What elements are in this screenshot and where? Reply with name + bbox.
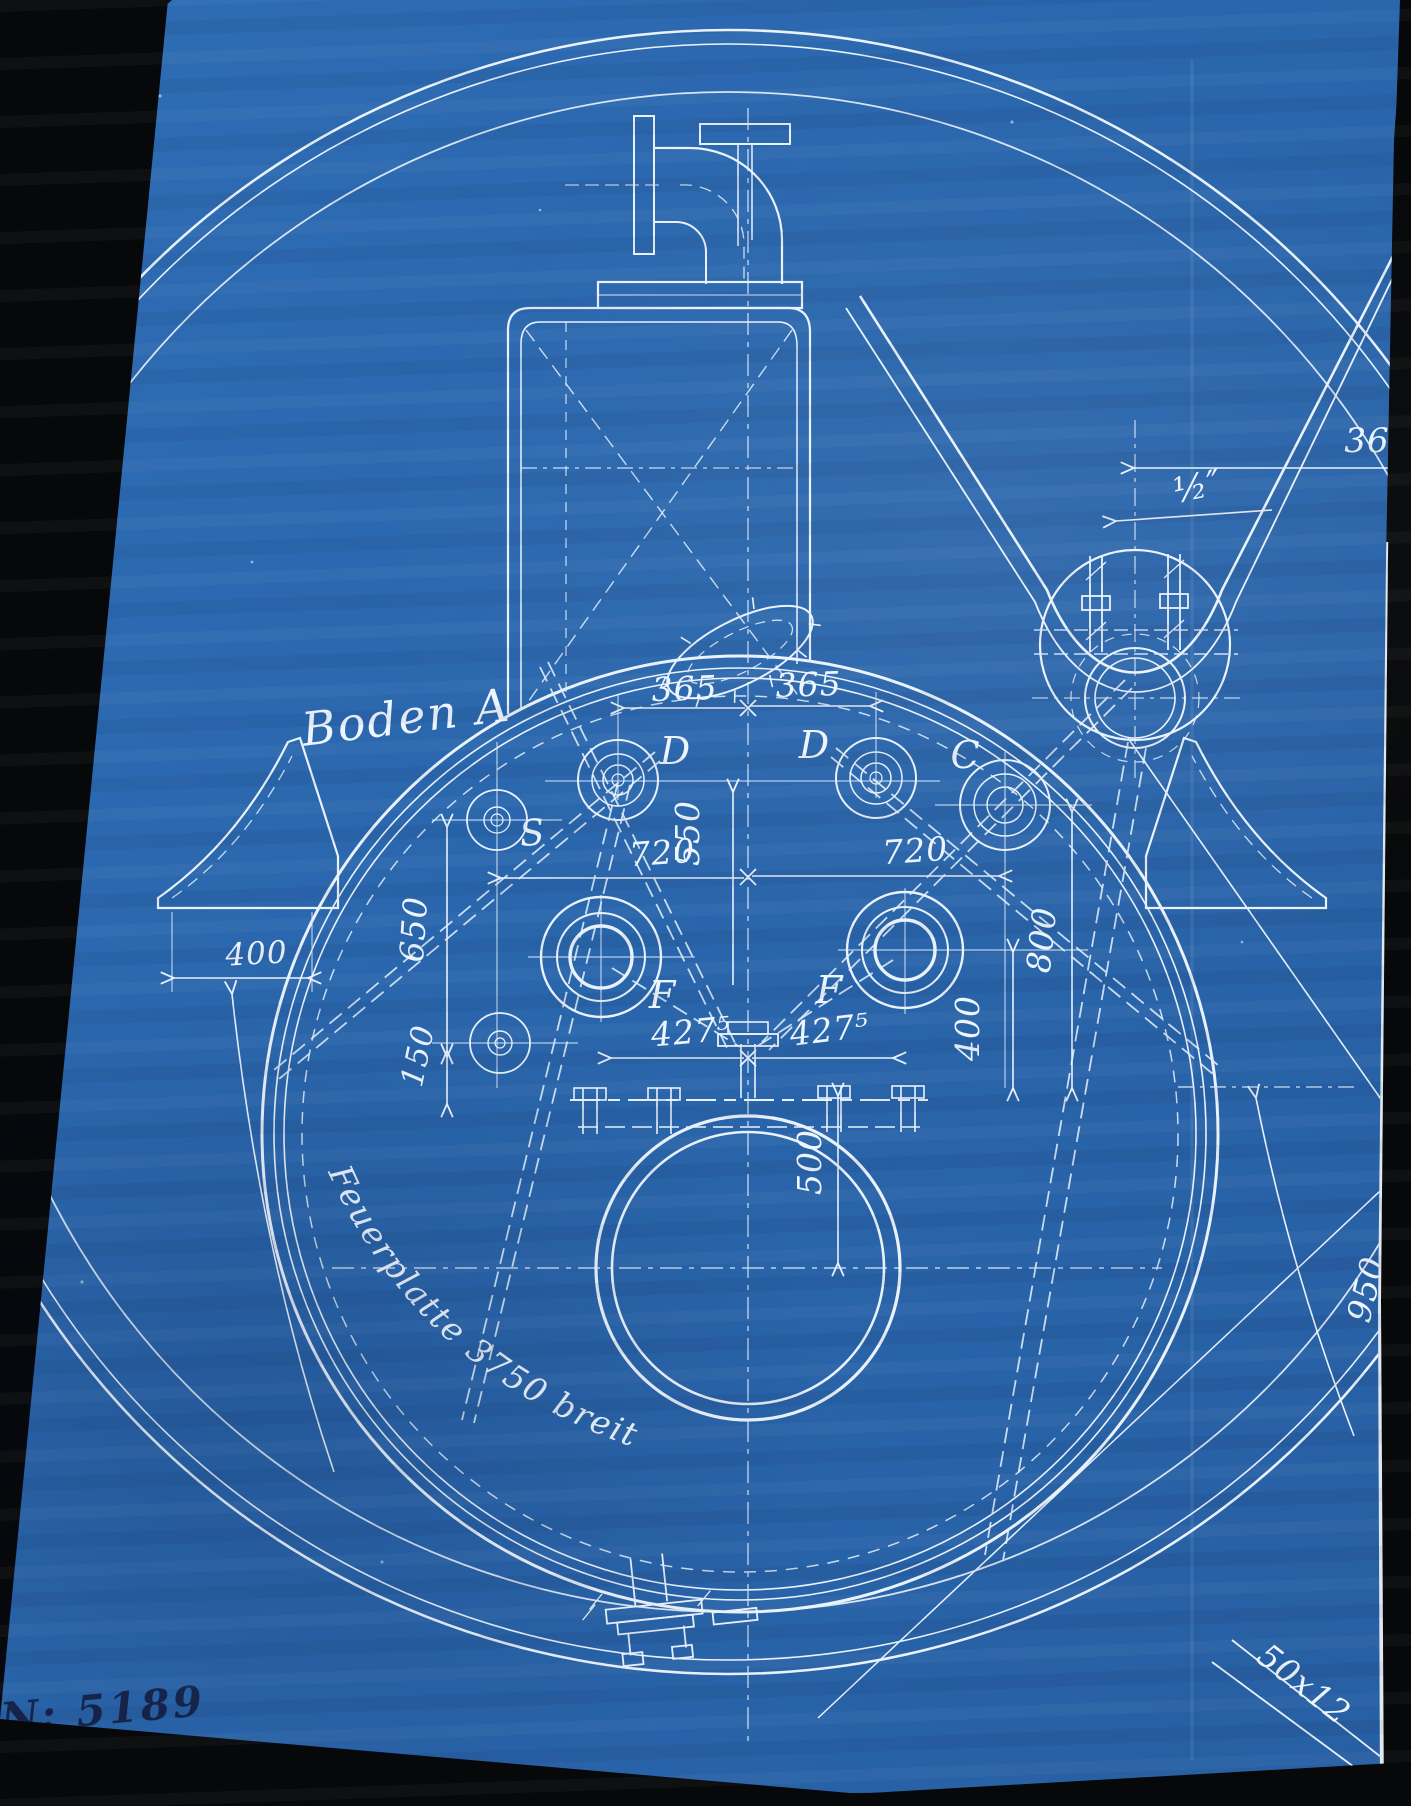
label-d-left: D	[659, 729, 692, 773]
label-f-right: F	[815, 968, 844, 1012]
dim-400-left: 400	[223, 934, 288, 973]
dim-650: 650	[392, 895, 436, 964]
dim-800: 800	[1019, 905, 1065, 975]
dim-36: 36	[1344, 421, 1389, 461]
dim-720-right: 720	[881, 829, 950, 873]
scanned-blueprint-sheet: Boden ADDCSFF365365550720720650150400427…	[0, 0, 1411, 1806]
dim-500: 500	[790, 1129, 829, 1195]
dim-365-left: 365	[651, 668, 718, 709]
blueprint-drawing: Boden ADDCSFF365365550720720650150400427…	[0, 0, 1411, 1806]
dim-365-right: 365	[775, 664, 842, 705]
label-f-left: F	[648, 973, 677, 1017]
label-d-right: D	[798, 723, 831, 767]
dim-720-left: 720	[628, 831, 697, 875]
scan-edge-left-notch	[0, 930, 14, 962]
scan-edge-top-left	[0, 0, 172, 152]
dim-427-left: 427⁵	[648, 1009, 732, 1055]
dim-400-right: 400	[948, 995, 987, 1062]
label-c: C	[950, 733, 981, 777]
label-s: S	[518, 812, 548, 855]
